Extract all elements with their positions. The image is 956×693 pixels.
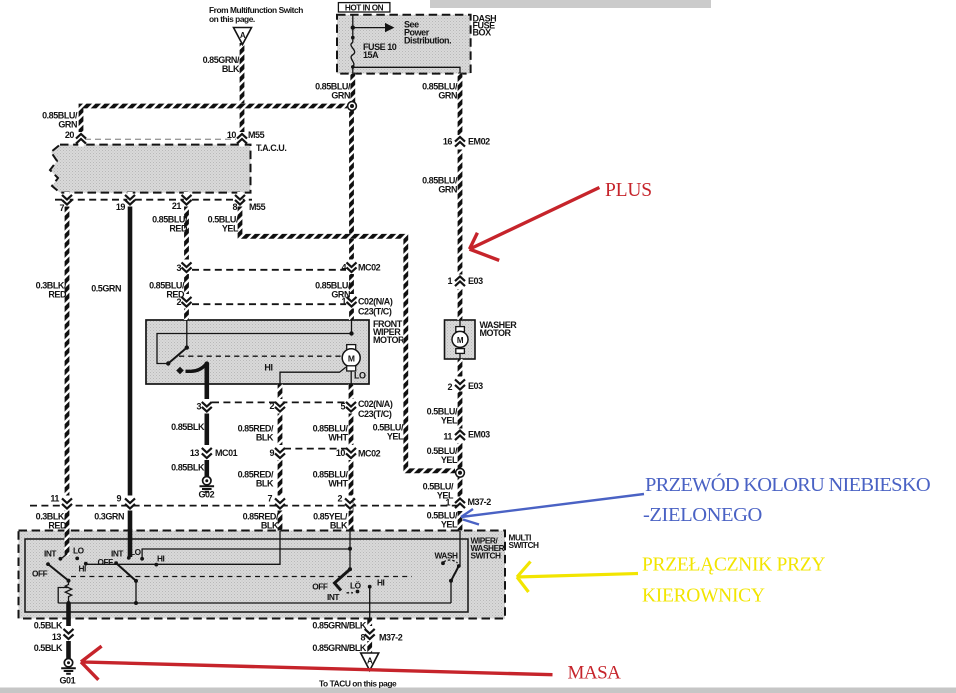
svg-text:0.5BLK: 0.5BLK <box>34 621 63 631</box>
svg-text:MASA: MASA <box>568 663 622 684</box>
svg-text:13: 13 <box>190 448 200 458</box>
svg-text:MC02: MC02 <box>358 449 381 459</box>
svg-text:WASH: WASH <box>435 551 459 561</box>
svg-text:RED: RED <box>48 521 67 531</box>
svg-text:0.85GRN/BLK: 0.85GRN/BLK <box>312 621 367 631</box>
svg-text:SWITCH: SWITCH <box>471 551 501 561</box>
svg-text:0.85BLK: 0.85BLK <box>171 463 205 473</box>
svg-text:0.5GRN: 0.5GRN <box>91 284 121 294</box>
svg-text:BOX: BOX <box>473 28 492 38</box>
svg-text:YEL: YEL <box>441 416 458 426</box>
svg-text:INT: INT <box>111 549 123 559</box>
svg-text:MC02: MC02 <box>358 263 381 273</box>
svg-text:WHT: WHT <box>328 433 348 443</box>
svg-text:LO: LO <box>354 371 366 381</box>
svg-text:11: 11 <box>443 432 452 442</box>
svg-text:10: 10 <box>227 130 237 140</box>
svg-text:C02(N/A): C02(N/A) <box>358 297 393 307</box>
svg-text:PRZEWÓD KOLORU NIEBIESKO: PRZEWÓD KOLORU NIEBIESKO <box>645 472 930 496</box>
svg-text:8: 8 <box>232 202 237 212</box>
svg-text:BLK: BLK <box>330 521 348 531</box>
svg-text:BLK: BLK <box>222 64 240 74</box>
svg-text:PRZEŁĄCZNIK PRZY: PRZEŁĄCZNIK PRZY <box>642 555 825 576</box>
svg-text:PLUS: PLUS <box>605 180 652 201</box>
svg-text:M55: M55 <box>248 130 265 140</box>
svg-text:MC01: MC01 <box>215 448 238 458</box>
svg-text:OFF: OFF <box>312 582 328 592</box>
svg-text:OFF: OFF <box>32 569 48 579</box>
svg-text:WHT: WHT <box>328 479 348 489</box>
svg-text:INT: INT <box>44 549 56 559</box>
svg-text:1: 1 <box>445 498 450 508</box>
svg-text:YEL: YEL <box>387 432 404 442</box>
svg-text:RED: RED <box>169 224 188 234</box>
svg-text:13: 13 <box>52 632 62 642</box>
svg-text:LÖ: LÖ <box>350 581 362 591</box>
svg-text:2: 2 <box>337 494 342 504</box>
svg-text:To TACU on this page: To TACU on this page <box>319 679 397 689</box>
svg-text:EM03: EM03 <box>468 430 490 440</box>
svg-text:M37-2: M37-2 <box>379 633 403 643</box>
svg-text:OFF: OFF <box>98 557 114 567</box>
svg-text:YEL: YEL <box>441 520 458 530</box>
svg-text:E03: E03 <box>468 276 483 286</box>
svg-text:EM02: EM02 <box>468 137 490 147</box>
svg-text:YEL: YEL <box>222 224 239 234</box>
svg-text:1: 1 <box>447 276 452 286</box>
svg-text:T.A.C.U.: T.A.C.U. <box>256 143 286 153</box>
svg-text:5: 5 <box>340 402 345 412</box>
svg-text:M37-2: M37-2 <box>468 497 492 507</box>
svg-text:0.3GRN: 0.3GRN <box>94 512 124 522</box>
svg-text:9: 9 <box>116 494 121 504</box>
svg-text:HI: HI <box>377 578 385 588</box>
svg-text:8: 8 <box>360 633 365 643</box>
svg-text:GRN: GRN <box>438 185 457 195</box>
svg-text:BLK: BLK <box>256 479 274 489</box>
svg-text:2: 2 <box>176 297 181 307</box>
svg-text:C23(T/C): C23(T/C) <box>358 307 392 317</box>
svg-text:SWITCH: SWITCH <box>509 540 539 550</box>
svg-text:HI: HI <box>264 363 272 373</box>
svg-text:2: 2 <box>269 401 274 411</box>
svg-text:0.85GRN/BLK: 0.85GRN/BLK <box>312 643 367 653</box>
svg-text:3: 3 <box>196 402 201 412</box>
svg-text:M55: M55 <box>249 202 266 212</box>
svg-text:2: 2 <box>447 382 452 392</box>
svg-text:YEL: YEL <box>441 455 458 465</box>
svg-text:HI: HI <box>157 554 165 564</box>
svg-text:C02(N/A): C02(N/A) <box>358 399 393 409</box>
svg-text:G01: G01 <box>60 676 76 686</box>
svg-text:E03: E03 <box>468 381 483 391</box>
svg-text:16: 16 <box>443 137 453 147</box>
svg-text:G02: G02 <box>199 490 215 500</box>
svg-text:11: 11 <box>50 494 59 504</box>
svg-text:KIEROWNICY: KIEROWNICY <box>642 586 765 607</box>
svg-text:M: M <box>457 336 464 345</box>
svg-text:A: A <box>367 657 373 666</box>
svg-text:19: 19 <box>116 202 126 212</box>
svg-text:20: 20 <box>65 130 75 140</box>
svg-text:M: M <box>348 354 355 364</box>
svg-text:3: 3 <box>176 263 181 273</box>
svg-text:GRN: GRN <box>58 120 77 130</box>
svg-text:C23(T/C): C23(T/C) <box>358 409 392 419</box>
svg-text:LO: LO <box>130 547 142 557</box>
svg-text:HI: HI <box>79 564 87 574</box>
svg-text:Distribution.: Distribution. <box>404 36 451 46</box>
svg-text:BLK: BLK <box>256 433 274 443</box>
svg-text:15A: 15A <box>363 50 379 60</box>
svg-text:1: 1 <box>341 297 346 307</box>
svg-text:9: 9 <box>269 448 274 458</box>
svg-text:INT: INT <box>327 592 339 602</box>
svg-text:LO: LO <box>73 546 85 556</box>
svg-text:GRN: GRN <box>438 91 457 101</box>
svg-text:BLK: BLK <box>261 521 279 531</box>
svg-text:HOT IN ON: HOT IN ON <box>345 3 384 12</box>
svg-text:21: 21 <box>172 201 182 211</box>
svg-text:10: 10 <box>336 448 346 458</box>
svg-text:GRN: GRN <box>331 91 350 101</box>
svg-text:RED: RED <box>48 290 67 300</box>
svg-text:on this page.: on this page. <box>209 14 255 24</box>
svg-text:MOTOR: MOTOR <box>373 335 405 345</box>
svg-text:7: 7 <box>59 203 64 213</box>
svg-text:7: 7 <box>267 494 272 504</box>
svg-text:MOTOR: MOTOR <box>480 328 512 338</box>
svg-text:A: A <box>240 31 246 40</box>
svg-text:0.5BLK: 0.5BLK <box>34 643 63 653</box>
svg-text:0.85BLK: 0.85BLK <box>171 422 205 432</box>
svg-text:4: 4 <box>341 263 346 273</box>
svg-text:-ZIELONEGO: -ZIELONEGO <box>643 504 762 526</box>
